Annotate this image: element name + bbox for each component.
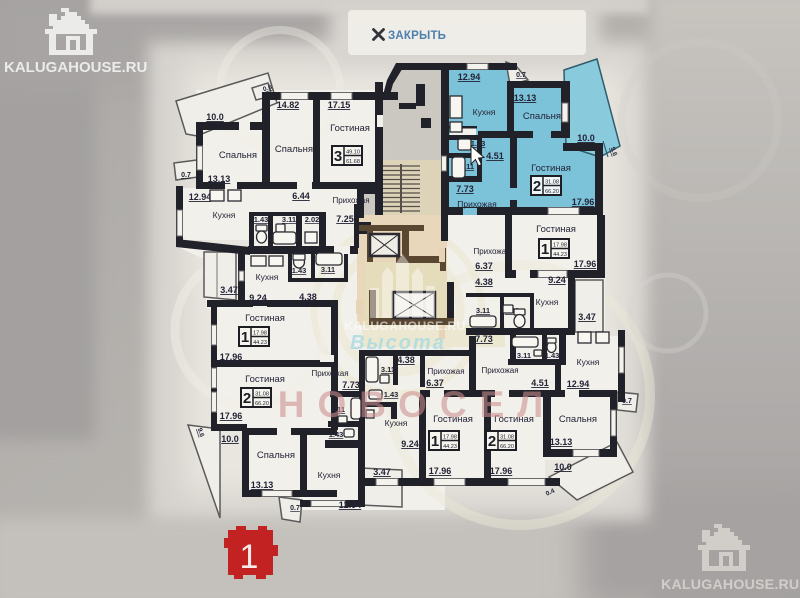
svg-text:Гостиная: Гостиная — [536, 224, 576, 235]
svg-text:66.20: 66.20 — [545, 189, 559, 195]
svg-text:1.43: 1.43 — [254, 215, 269, 224]
svg-text:12.94: 12.94 — [339, 500, 362, 510]
svg-text:KALUGAHOUSE.RU: KALUGAHOUSE.RU — [344, 319, 466, 333]
svg-text:KALUGAHOUSE.RU: KALUGAHOUSE.RU — [661, 577, 799, 593]
svg-text:4.38: 4.38 — [475, 277, 493, 287]
svg-text:13.13: 13.13 — [251, 480, 274, 490]
svg-text:0.7: 0.7 — [516, 72, 526, 79]
svg-text:1: 1 — [240, 538, 259, 576]
svg-text:3.11: 3.11 — [517, 351, 531, 360]
svg-text:10.0: 10.0 — [206, 112, 224, 122]
svg-text:17.96: 17.96 — [220, 411, 243, 421]
svg-text:61.68: 61.68 — [346, 159, 360, 165]
svg-text:Прихожая: Прихожая — [481, 366, 518, 375]
svg-text:3.11: 3.11 — [381, 365, 395, 374]
svg-text:66.20: 66.20 — [255, 401, 269, 407]
svg-text:17.96: 17.96 — [220, 352, 243, 362]
svg-text:17.15: 17.15 — [328, 100, 351, 110]
svg-text:31.08: 31.08 — [500, 435, 514, 441]
svg-text:Прихожая: Прихожая — [457, 199, 497, 209]
svg-text:3: 3 — [334, 148, 342, 165]
svg-text:0.7: 0.7 — [290, 505, 300, 512]
svg-text:KALUGAHOUSE.RU: KALUGAHOUSE.RU — [4, 59, 147, 76]
svg-text:Высота: Высота — [350, 332, 446, 354]
svg-text:66.20: 66.20 — [500, 444, 514, 450]
svg-text:Спальня: Спальня — [523, 111, 561, 122]
svg-text:4.51: 4.51 — [486, 151, 504, 161]
svg-text:Прихожая: Прихожая — [473, 247, 510, 256]
svg-text:44.23: 44.23 — [553, 252, 567, 258]
svg-text:9.24: 9.24 — [401, 439, 419, 449]
svg-text:44.23: 44.23 — [443, 444, 457, 450]
svg-text:17.96: 17.96 — [574, 259, 597, 269]
svg-text:6.44: 6.44 — [292, 191, 310, 201]
svg-text:4.38: 4.38 — [299, 292, 317, 302]
svg-text:7.73: 7.73 — [475, 334, 493, 344]
svg-text:Гостиная: Гостиная — [531, 163, 571, 174]
svg-text:12.94: 12.94 — [189, 192, 212, 202]
svg-text:3.11: 3.11 — [282, 215, 296, 224]
svg-text:2: 2 — [533, 178, 541, 195]
svg-text:13.13: 13.13 — [550, 437, 573, 447]
svg-text:1.43: 1.43 — [329, 430, 344, 439]
svg-text:7.73: 7.73 — [456, 184, 474, 194]
svg-text:3.11: 3.11 — [321, 265, 335, 274]
svg-text:3.47: 3.47 — [373, 467, 391, 477]
svg-text:Кухня: Кухня — [318, 470, 341, 480]
svg-text:17.98: 17.98 — [443, 435, 457, 441]
svg-text:17.98: 17.98 — [253, 331, 267, 337]
svg-text:Прихожая: Прихожая — [332, 196, 369, 205]
svg-text:13.13: 13.13 — [208, 174, 231, 184]
svg-text:Кухня: Кухня — [577, 357, 600, 367]
svg-text:17.96: 17.96 — [572, 197, 595, 207]
svg-text:Кухня: Кухня — [473, 107, 496, 117]
svg-text:6.37: 6.37 — [475, 261, 493, 271]
svg-text:Спальня: Спальня — [219, 150, 257, 161]
svg-text:Прихожая: Прихожая — [311, 369, 348, 378]
svg-text:Кухня: Кухня — [213, 210, 236, 220]
svg-text:Спальня: Спальня — [559, 414, 597, 425]
svg-text:3.47: 3.47 — [220, 285, 238, 295]
svg-text:31.08: 31.08 — [255, 392, 269, 398]
svg-text:3.11: 3.11 — [476, 306, 490, 315]
svg-text:13.13: 13.13 — [514, 93, 537, 103]
svg-text:17.96: 17.96 — [490, 466, 513, 476]
svg-text:НОВОСЕЛ: НОВОСЕЛ — [278, 384, 556, 425]
svg-text:17.98: 17.98 — [553, 243, 567, 249]
svg-text:3.47: 3.47 — [578, 312, 596, 322]
svg-text:1: 1 — [431, 433, 439, 450]
svg-text:Спальня: Спальня — [257, 450, 295, 461]
svg-text:Прихожая: Прихожая — [427, 367, 464, 376]
svg-text:10.0: 10.0 — [577, 133, 595, 143]
svg-text:Спальня: Спальня — [275, 144, 313, 155]
svg-text:1: 1 — [241, 329, 249, 346]
svg-text:44.23: 44.23 — [253, 340, 267, 346]
svg-text:0.7: 0.7 — [181, 172, 191, 179]
svg-text:Гостиная: Гостиная — [330, 123, 370, 134]
svg-text:Гостиная: Гостиная — [245, 313, 285, 324]
svg-text:9.24: 9.24 — [548, 275, 566, 285]
svg-text:2: 2 — [488, 433, 496, 450]
svg-text:12.94: 12.94 — [458, 72, 481, 82]
svg-text:49.10: 49.10 — [346, 150, 360, 156]
svg-text:10.0: 10.0 — [221, 434, 239, 444]
svg-text:Кухня: Кухня — [256, 272, 279, 282]
svg-text:7.25: 7.25 — [336, 214, 354, 224]
svg-text:ЗАКРЫТЬ: ЗАКРЫТЬ — [388, 30, 446, 42]
svg-text:1.43: 1.43 — [471, 139, 486, 148]
svg-text:4.38: 4.38 — [397, 355, 415, 365]
svg-text:17.96: 17.96 — [429, 466, 452, 476]
svg-text:2.02: 2.02 — [305, 215, 320, 224]
svg-text:Кухня: Кухня — [536, 297, 559, 307]
svg-text:10.0: 10.0 — [554, 462, 572, 472]
svg-text:31.08: 31.08 — [545, 180, 559, 186]
svg-text:12.94: 12.94 — [567, 379, 590, 389]
svg-text:2: 2 — [243, 390, 251, 407]
svg-text:9.24: 9.24 — [249, 293, 267, 303]
svg-text:1: 1 — [541, 241, 549, 258]
svg-text:14.82: 14.82 — [277, 100, 300, 110]
svg-text:0.7: 0.7 — [622, 398, 632, 405]
